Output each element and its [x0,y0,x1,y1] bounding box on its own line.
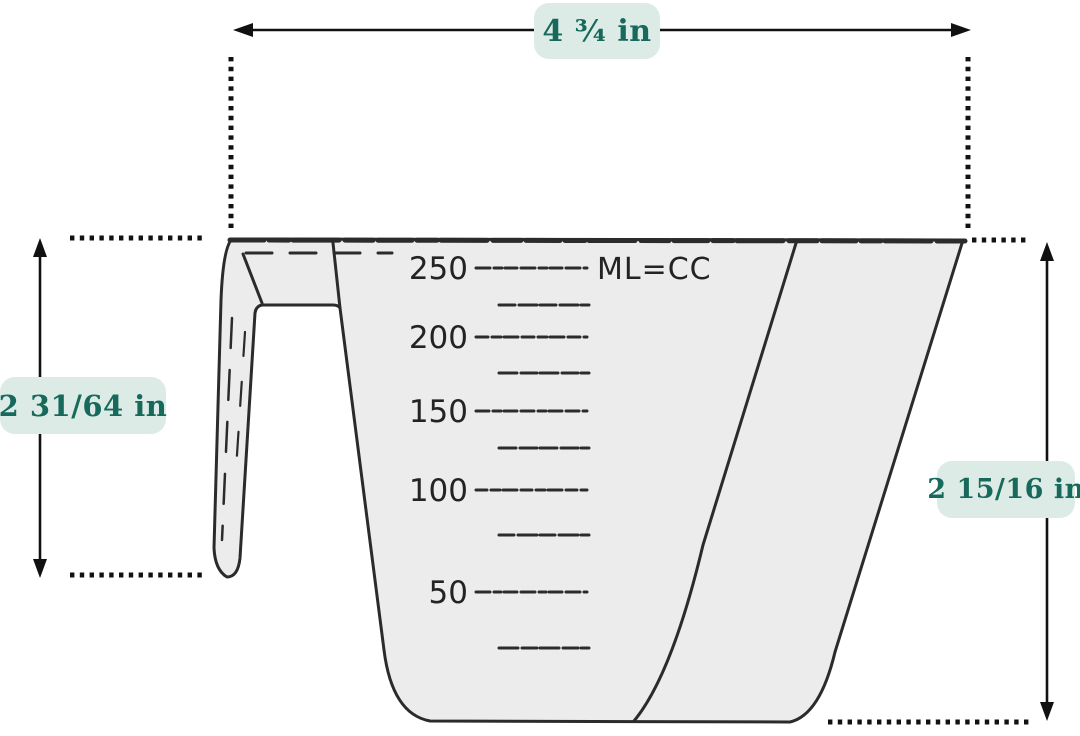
scale-label-50: 50 [429,575,468,611]
measuring-cup [214,239,966,722]
top-width-dimension-label: 4 ¾ in [534,3,660,59]
arrow-up-right-icon [1040,242,1054,261]
arrow-down-left-icon [33,559,47,578]
left-height-dimension-label: 2 31/64 in [0,377,166,434]
scale-label-200: 200 [409,320,468,356]
right-height-dimension-label: 2 15/16 in [937,461,1075,518]
unit-label: ML=CC [597,252,712,287]
cup-rim-line [230,240,966,241]
diagram-canvas: 250 200 150 100 50 ML=CC [0,0,1080,736]
scale-label-150: 150 [409,394,468,430]
scale-label-100: 100 [409,473,468,509]
cup-body-outline [214,239,963,722]
arrow-down-right-icon [1040,702,1054,721]
arrow-up-left-icon [33,238,47,257]
arrow-right-icon [951,23,971,37]
scale-label-250: 250 [409,251,468,287]
arrow-left-icon [233,23,253,37]
measuring-cup-diagram: 250 200 150 100 50 ML=CC [0,0,1080,736]
